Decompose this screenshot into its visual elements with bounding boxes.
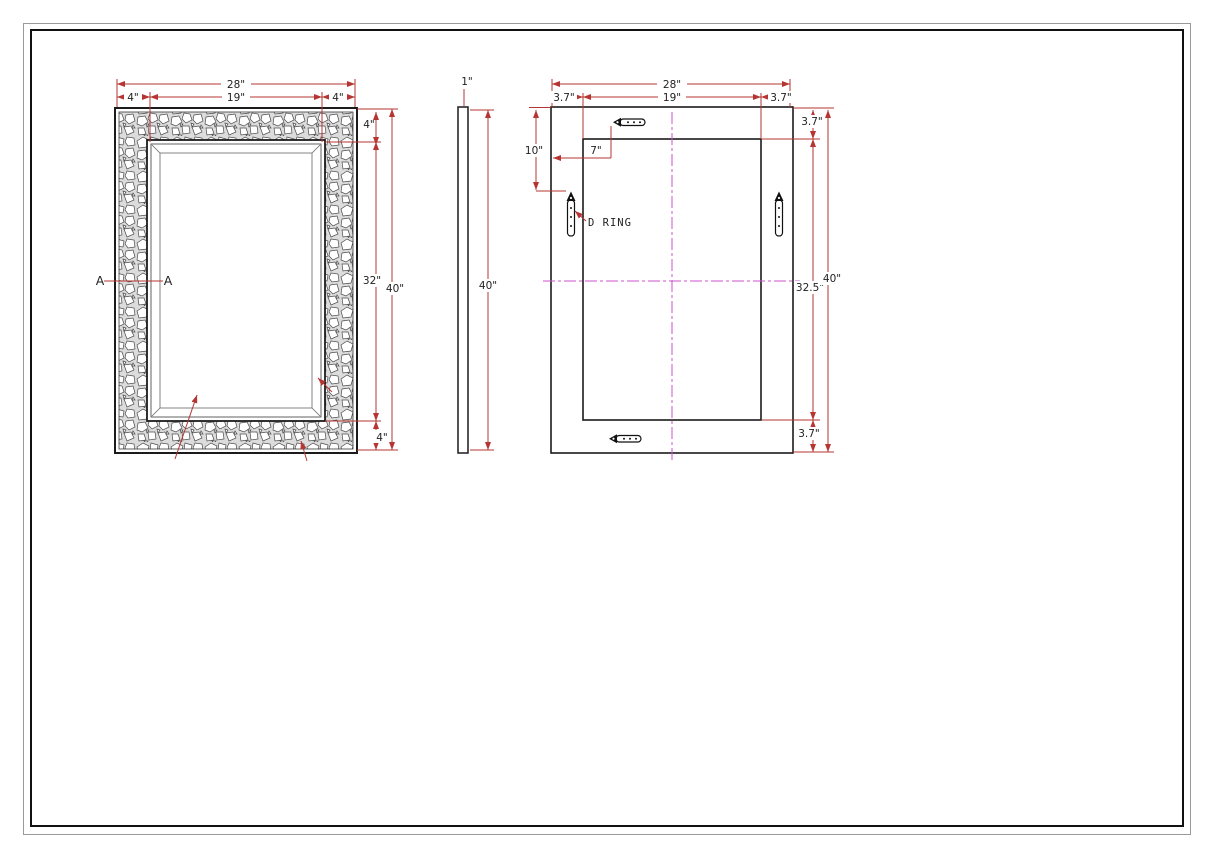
front-dim-opening-height: 32" <box>361 142 383 421</box>
back-opening-height-label: 32.5" <box>796 282 824 294</box>
back-dim-margin-top: 3.7" <box>762 108 834 139</box>
front-frame-top-label: 4" <box>363 119 375 131</box>
side-thickness-label: 1" <box>461 76 473 88</box>
mirror-bevel-corners <box>152 145 320 416</box>
section-label-right: A <box>164 273 173 288</box>
drawing-canvas: 28" 4" 19" 4" 4" 32" <box>0 0 1214 858</box>
front-view: 28" 4" 19" 4" 4" 32" <box>96 78 406 462</box>
front-frame-bottom-label: 4" <box>376 432 388 444</box>
d-ring-top <box>613 118 645 127</box>
back-view: 28" 3.7" 19" 3.7" 10" 7" <box>523 78 844 463</box>
front-dim-overall-height: 40" <box>384 109 406 450</box>
back-opening-width-label: 19" <box>663 92 681 104</box>
side-profile <box>458 107 468 453</box>
back-dring-from-left-label: 7" <box>590 145 602 157</box>
back-dim-overall-height: 40" <box>820 110 844 452</box>
front-overall-height-label: 40" <box>386 283 404 295</box>
back-dim-dring-from-left: 7" <box>553 126 611 158</box>
front-frame-right-label: 4" <box>332 92 344 104</box>
back-margin-bottom-label: 3.7" <box>798 428 820 440</box>
side-dim-thickness: 1" <box>461 76 473 106</box>
front-opening-height-label: 32" <box>363 275 381 287</box>
back-dring-from-top-label: 10" <box>525 145 543 157</box>
d-ring-bottom <box>609 434 641 443</box>
back-margin-top-label: 3.7" <box>801 116 823 128</box>
d-ring-right <box>775 192 784 237</box>
mirror-glass <box>160 153 312 408</box>
side-overall-height-label: 40" <box>479 280 497 292</box>
front-opening-width-label: 19" <box>227 92 245 104</box>
section-label-left: A <box>96 273 105 288</box>
front-overall-width-label: 28" <box>227 79 245 91</box>
back-overall-height-label: 40" <box>823 273 841 285</box>
back-overall-width-label: 28" <box>663 79 681 91</box>
back-dim-dring-from-top: 10" <box>523 108 566 192</box>
back-dim-margin-bottom: 3.7" <box>762 420 834 452</box>
side-dim-overall-height: 40" <box>470 110 500 450</box>
side-view: 1" 40" <box>458 76 500 453</box>
d-ring-label: D RING <box>588 217 632 229</box>
back-margin-left-label: 3.7" <box>553 92 575 104</box>
frame-inner-trim <box>147 140 325 421</box>
back-margin-right-label: 3.7" <box>770 92 792 104</box>
d-ring-left <box>567 192 576 237</box>
front-frame-left-label: 4" <box>127 92 139 104</box>
